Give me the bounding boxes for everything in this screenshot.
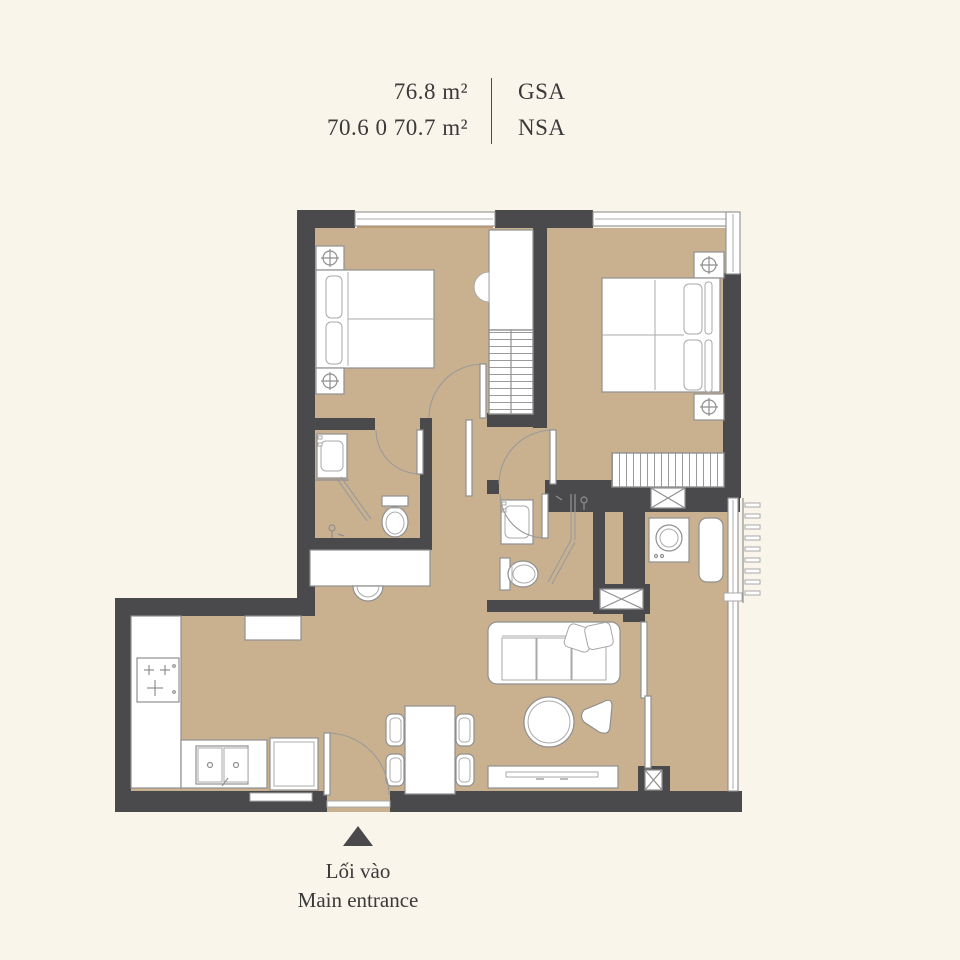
shaft-icon <box>645 770 662 790</box>
fridge-icon <box>270 738 318 790</box>
entrance-label-en: Main entrance <box>238 888 478 913</box>
chair-icon <box>386 714 404 746</box>
double-bed-icon <box>316 270 434 368</box>
washbasin-icon <box>315 434 349 480</box>
cooktop-icon <box>137 658 179 702</box>
chair-icon <box>456 714 474 746</box>
chair-icon <box>456 754 474 786</box>
dining-table-icon <box>405 706 455 794</box>
nightstand-icon <box>316 246 344 270</box>
chair-icon <box>386 754 404 786</box>
throw-pillow-icon <box>584 622 614 651</box>
washing-machine-icon <box>649 518 689 562</box>
sliding-door-icon <box>466 420 472 496</box>
floor-plan-page: 76.8 m² 70.6 0 70.7 m² GSA NSA <box>0 0 960 960</box>
wall-vent-icon <box>250 793 312 801</box>
double-bed-icon <box>602 278 720 392</box>
wardrobe-icon <box>489 330 533 414</box>
entrance-label-vi: Lối vào <box>238 859 478 884</box>
nightstand-icon <box>694 252 724 278</box>
toilet-icon <box>382 496 408 537</box>
corner-window-icon <box>726 212 740 274</box>
tv-console-icon <box>488 766 618 788</box>
ac-louver-icon <box>743 498 760 603</box>
shaft-icon <box>651 488 685 508</box>
nightstand-icon <box>316 368 344 394</box>
washbasin-icon <box>501 500 533 544</box>
window-icon <box>355 212 495 228</box>
entrance-callout: Lối vào Main entrance <box>238 826 478 913</box>
wardrobe-icon <box>612 453 724 487</box>
vanity-counter-icon <box>310 550 430 586</box>
cabinet-icon <box>699 518 723 582</box>
shaft-icon <box>600 589 643 609</box>
nightstand-icon <box>694 394 724 420</box>
floor-plan-svg <box>0 0 960 960</box>
kitchen-sink-icon <box>196 746 248 786</box>
kitchen-cabinet-icon <box>245 616 301 640</box>
window-icon <box>593 212 733 226</box>
triangle-up-icon <box>343 826 373 846</box>
coffee-table-icon <box>524 697 574 747</box>
